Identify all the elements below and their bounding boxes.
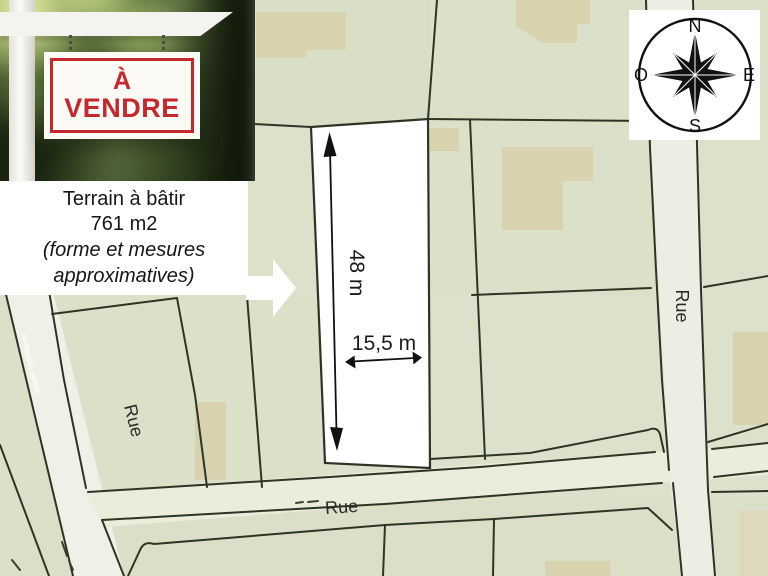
compass-north-label: N	[689, 16, 702, 36]
sign-red-frame: À VENDRE	[50, 58, 194, 133]
sign-chain-right	[162, 35, 165, 53]
compass-east-label: E	[743, 65, 755, 85]
sign-post-arm	[0, 12, 233, 36]
info-line-4: approximatives)	[53, 264, 194, 290]
compass-west-label: O	[634, 65, 648, 85]
a-vendre-sign: À VENDRE	[44, 52, 200, 139]
street-label-right: Rue	[672, 289, 692, 322]
building	[739, 511, 768, 576]
info-line-1: Terrain à bâtir	[63, 187, 185, 213]
land-info-box: Terrain à bâtir 761 m2 (forme et mesures…	[0, 181, 248, 295]
info-line-2: 761 m2	[91, 212, 158, 238]
building	[733, 332, 768, 425]
sign-text-line2: VENDRE	[64, 94, 180, 122]
for-sale-land-flyer: 48 m 15,5 m Rue Rue Rue N E	[0, 0, 768, 576]
compass-south-label: S	[689, 116, 701, 136]
parcel-for-sale	[311, 119, 430, 468]
for-sale-sign-photo: À VENDRE	[0, 0, 255, 181]
street-label-bottom: Rue	[324, 496, 358, 518]
building	[430, 128, 459, 151]
parcel-width-label: 15,5 m	[352, 332, 416, 355]
building	[545, 561, 610, 576]
building	[195, 402, 226, 480]
info-line-3: (forme et mesures	[43, 238, 205, 264]
sign-chain-left	[69, 35, 72, 53]
parcel-height-label: 48 m	[345, 250, 368, 297]
compass-rose: N E S O	[629, 10, 760, 140]
sign-text-line1: À	[113, 68, 131, 94]
